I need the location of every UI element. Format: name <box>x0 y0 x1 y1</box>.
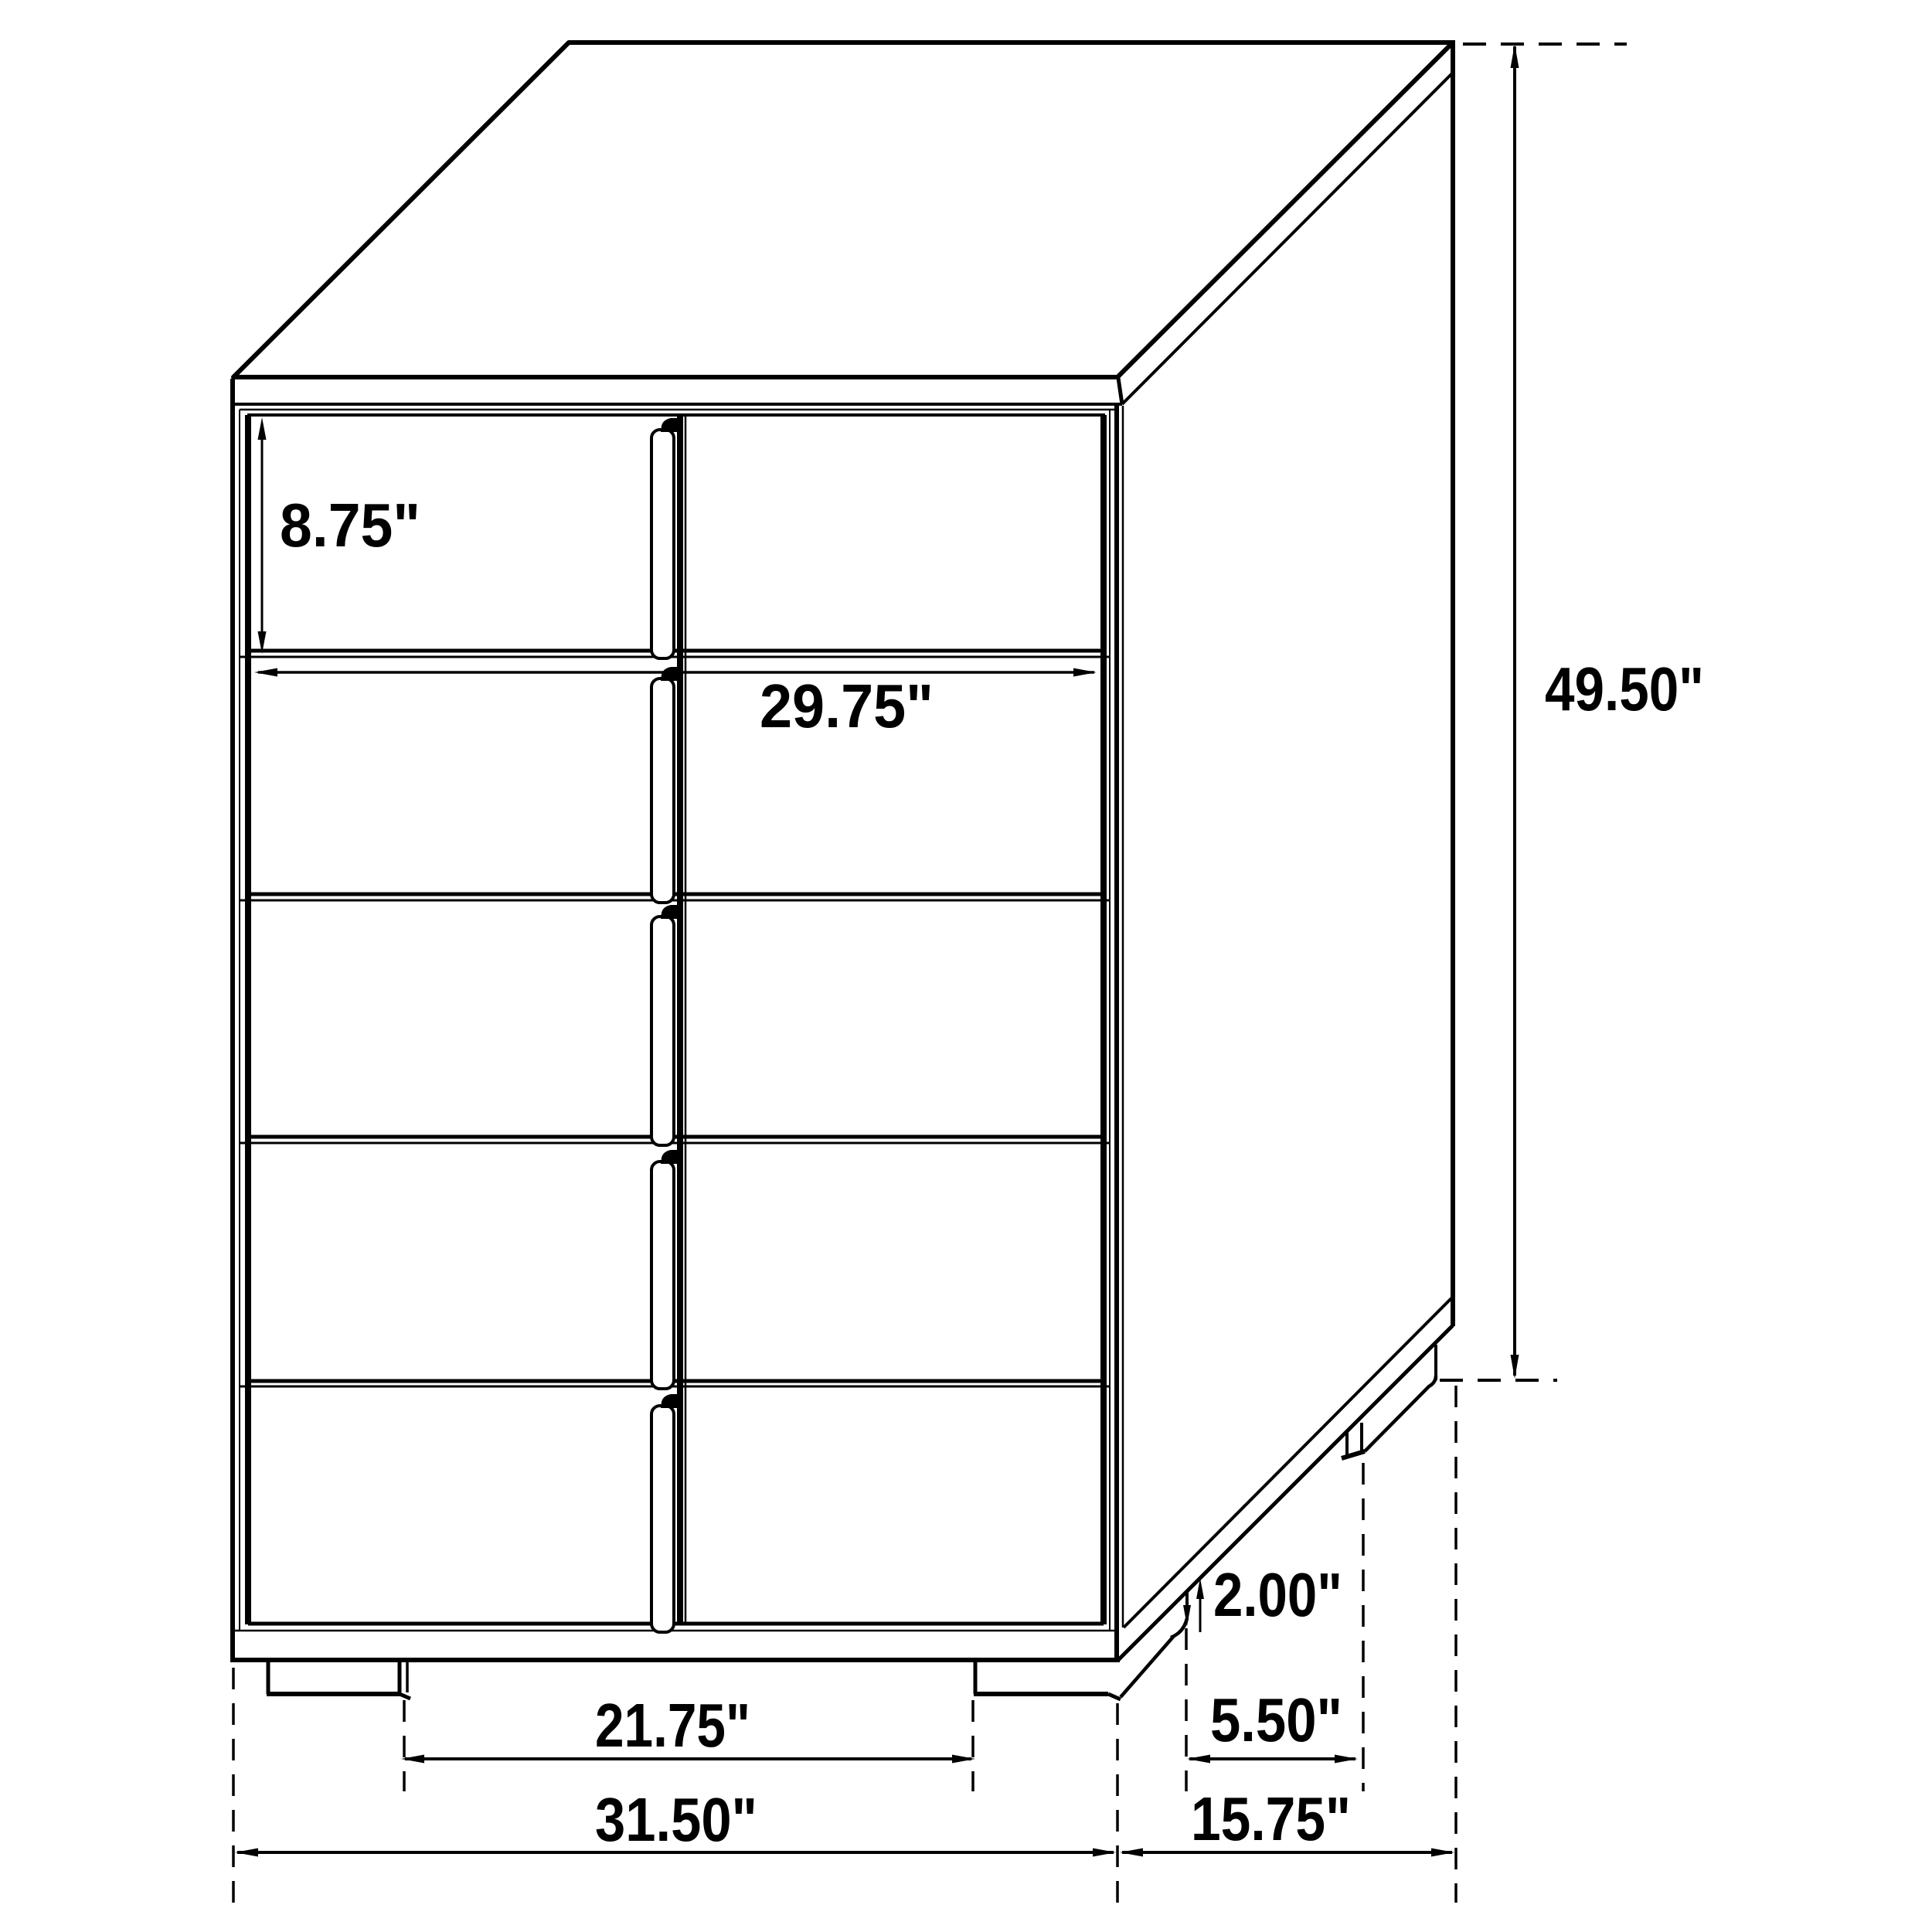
svg-text:8.75": 8.75" <box>280 491 420 560</box>
svg-text:21.75": 21.75" <box>595 1691 750 1760</box>
svg-text:31.50": 31.50" <box>595 1785 757 1854</box>
svg-text:15.75": 15.75" <box>1191 1784 1351 1853</box>
svg-text:2.00": 2.00" <box>1213 1560 1342 1629</box>
svg-text:29.75": 29.75" <box>760 672 934 740</box>
svg-text:49.50": 49.50" <box>1545 655 1704 723</box>
svg-text:5.50": 5.50" <box>1210 1685 1342 1754</box>
